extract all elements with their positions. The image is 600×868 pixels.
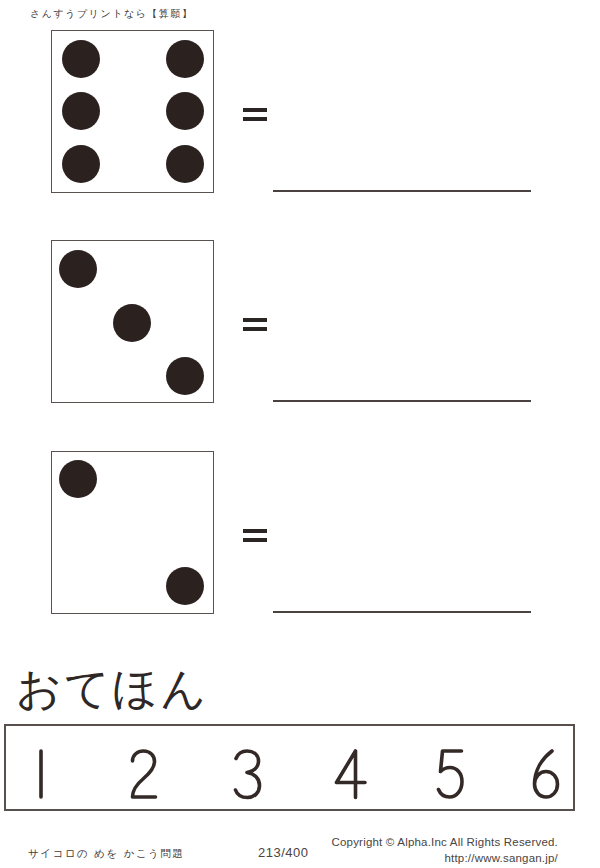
example-number-strip <box>4 724 575 811</box>
die-pip <box>62 145 100 183</box>
die-pip <box>113 304 151 342</box>
die-pip <box>166 357 204 395</box>
site-url: http://www.sangan.jp/ <box>331 851 558 867</box>
equals-sign <box>243 108 267 126</box>
equals-bottom-bar <box>243 117 267 121</box>
equals-sign <box>243 318 267 336</box>
die-face-six <box>51 30 214 193</box>
copyright-line: Copyright © Alpha.Inc All Rights Reserve… <box>331 835 558 851</box>
example-digit-6 <box>524 746 566 802</box>
problem-row-2 <box>0 240 600 406</box>
example-digit-2 <box>123 746 165 802</box>
worksheet-title: サイコロの めを かこう問題 <box>28 847 184 861</box>
die-pip <box>166 40 204 78</box>
die-face-two <box>51 451 214 614</box>
example-heading: おてほん <box>16 666 208 711</box>
problem-row-1 <box>0 30 600 196</box>
example-digit-3 <box>226 746 268 802</box>
problem-row-3 <box>0 451 600 617</box>
equals-top-bar <box>243 318 267 322</box>
die-pip <box>62 40 100 78</box>
equals-top-bar <box>243 529 267 533</box>
equals-sign <box>243 529 267 547</box>
header-note: さんすうプリントなら【算願】 <box>30 7 193 21</box>
die-pip <box>62 92 100 130</box>
die-pip <box>59 250 97 288</box>
page-number: 213/400 <box>258 845 309 860</box>
die-pip <box>166 145 204 183</box>
worksheet-page: さんすうプリントなら【算願】 おてほん サイコロの めを かこう問題 213/4… <box>0 0 600 868</box>
equals-bottom-bar <box>243 327 267 331</box>
equals-bottom-bar <box>243 538 267 542</box>
answer-blank-3[interactable] <box>273 611 531 613</box>
equals-top-bar <box>243 108 267 112</box>
copyright-block: Copyright © Alpha.Inc All Rights Reserve… <box>331 835 558 866</box>
die-face-three <box>51 240 214 403</box>
example-digit-1 <box>20 746 62 802</box>
example-digit-5 <box>430 746 472 802</box>
example-digit-4 <box>328 746 370 802</box>
answer-blank-2[interactable] <box>273 400 531 402</box>
die-pip <box>166 92 204 130</box>
die-pip <box>59 460 97 498</box>
die-pip <box>166 567 204 605</box>
answer-blank-1[interactable] <box>273 190 531 192</box>
